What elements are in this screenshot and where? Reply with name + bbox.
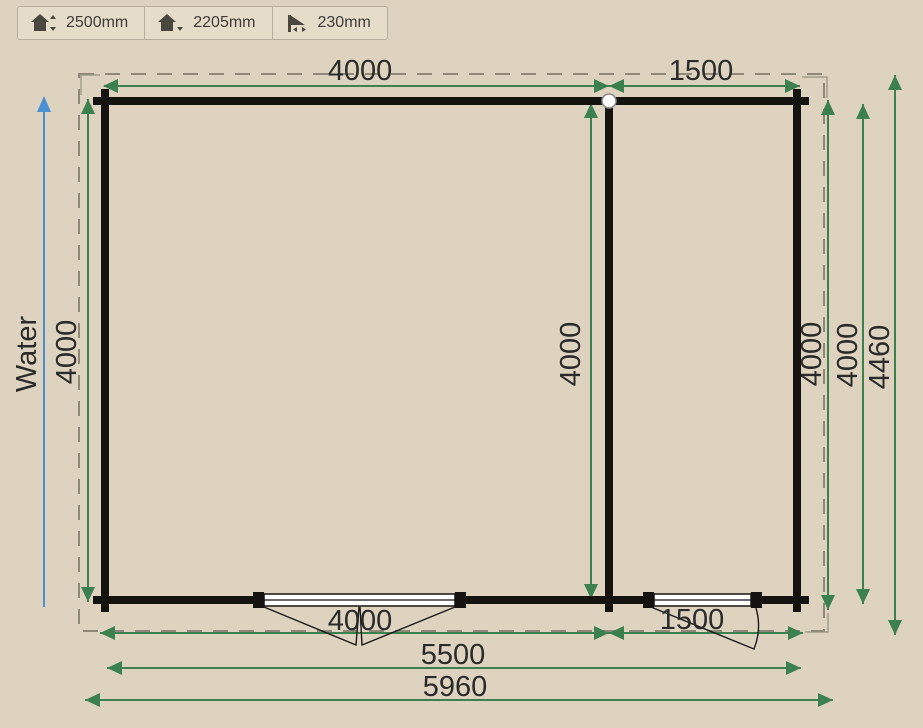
dim-label-bottom-right-room: 1500 bbox=[660, 604, 725, 636]
door-jamb bbox=[253, 592, 264, 608]
dim-label-middle-depth: 4000 bbox=[555, 322, 587, 387]
door-jamb bbox=[455, 592, 466, 608]
extension-lines bbox=[81, 75, 828, 632]
roof-outline bbox=[79, 74, 824, 631]
dimension-arrowheads bbox=[81, 75, 902, 707]
water-label: Water bbox=[11, 316, 43, 393]
water-arrowhead-icon bbox=[37, 96, 51, 112]
partition-drag-handle[interactable] bbox=[602, 94, 616, 108]
eave-height-button[interactable]: 2205mm bbox=[144, 6, 272, 40]
door-jamb bbox=[751, 592, 762, 608]
dim-label-left-depth: 4000 bbox=[51, 320, 83, 385]
roof-overhang-value: 230mm bbox=[318, 14, 371, 32]
dimension-lines bbox=[85, 75, 895, 700]
door-jamb bbox=[643, 592, 654, 608]
house-updown-icon bbox=[30, 12, 57, 34]
walls bbox=[93, 89, 809, 612]
dim-label-right-room-depth: 4000 bbox=[796, 322, 828, 387]
house-down-icon bbox=[157, 12, 184, 34]
eave-height-value: 2205mm bbox=[193, 14, 255, 32]
roof-overhang-button[interactable]: 230mm bbox=[272, 6, 388, 40]
measurement-toolbar: 2500mm 2205mm 230mm bbox=[17, 6, 388, 40]
dim-label-bottom-left-room: 4000 bbox=[328, 605, 393, 637]
roof-overhang-icon bbox=[285, 12, 309, 34]
dim-label-overall-depth: 4000 bbox=[832, 323, 864, 388]
cabin-configurator: { "toolbar": { "buttons": [ { "id": "rid… bbox=[0, 0, 923, 728]
dim-label-roof-width: 5960 bbox=[423, 671, 488, 703]
dim-label-roof-depth: 4460 bbox=[864, 325, 896, 390]
dim-label-top-left-room: 4000 bbox=[328, 55, 393, 87]
ridge-height-value: 2500mm bbox=[66, 14, 128, 32]
floorplan-canvas: 4000 1500 4000 1500 5500 5960 4000 Water… bbox=[0, 0, 923, 728]
dim-label-wall-width: 5500 bbox=[421, 639, 486, 671]
dim-label-top-right-room: 1500 bbox=[669, 55, 734, 87]
ridge-height-button[interactable]: 2500mm bbox=[17, 6, 145, 40]
